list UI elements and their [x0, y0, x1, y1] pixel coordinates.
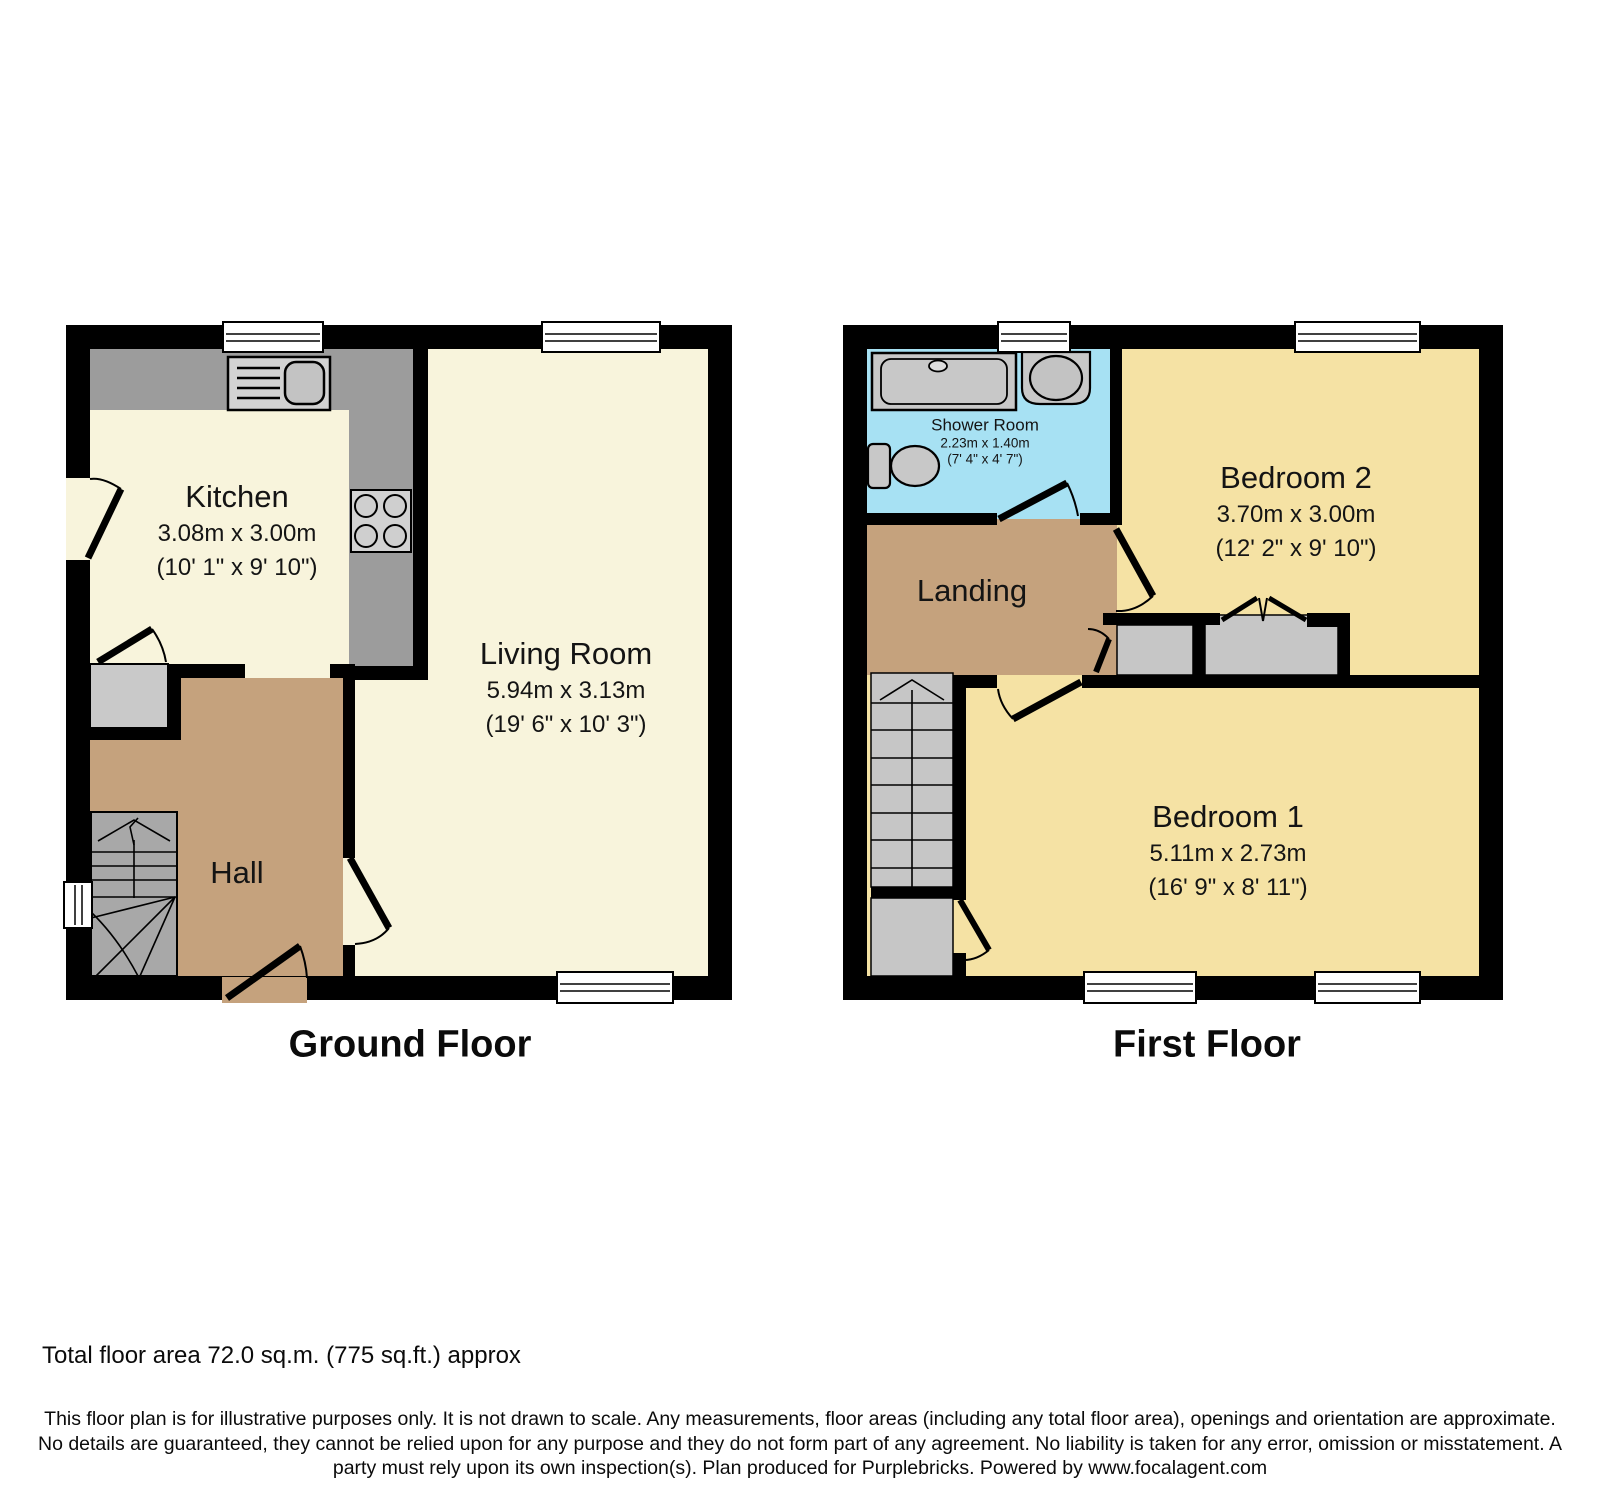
window-icon — [64, 882, 92, 928]
under-stairs-cupboard — [90, 664, 168, 728]
room-size-imperial: (7' 4" x 4' 7") — [931, 452, 1039, 468]
room-size-imperial: (19' 6" x 10' 3") — [480, 708, 652, 742]
room-name: Kitchen — [157, 477, 318, 517]
hall-label: Hall — [210, 853, 263, 893]
room-name: Landing — [917, 571, 1027, 611]
under-stairs-cupboard — [871, 898, 953, 976]
window-icon — [223, 322, 323, 352]
living-room-label: Living Room 5.94m x 3.13m (19' 6" x 10' … — [480, 634, 652, 742]
staircase-up-icon — [91, 812, 177, 976]
room-size-imperial: (12' 2" x 9' 10") — [1216, 532, 1377, 566]
window-icon — [1295, 322, 1420, 352]
window-icon — [1084, 972, 1196, 1003]
window-icon — [557, 972, 673, 1003]
ground-floor-title: Ground Floor — [289, 1024, 532, 1067]
room-name: Living Room — [480, 634, 652, 674]
toilet-icon — [868, 444, 939, 488]
hob-icon — [351, 490, 411, 552]
landing-label: Landing — [917, 571, 1027, 611]
total-floor-area: Total floor area 72.0 sq.m. (775 sq.ft.)… — [42, 1342, 521, 1370]
room-name: Shower Room — [931, 415, 1039, 436]
basin-icon — [1022, 352, 1090, 404]
room-size-metric: 3.08m x 3.00m — [157, 517, 318, 551]
shower-tray-icon — [872, 353, 1016, 410]
room-size-metric: 3.70m x 3.00m — [1216, 498, 1377, 532]
room-size-metric: 5.11m x 2.73m — [1148, 837, 1307, 871]
floorplan-canvas — [0, 0, 1600, 1501]
room-name: Bedroom 1 — [1148, 797, 1307, 837]
room-size-metric: 2.23m x 1.40m — [931, 436, 1039, 452]
room-size-metric: 5.94m x 3.13m — [480, 674, 652, 708]
kitchen-label: Kitchen 3.08m x 3.00m (10' 1" x 9' 10") — [157, 477, 318, 585]
disclaimer-text: This floor plan is for illustrative purp… — [35, 1407, 1565, 1481]
bedroom1-label: Bedroom 1 5.11m x 2.73m (16' 9" x 8' 11"… — [1148, 797, 1307, 905]
shower-room-label: Shower Room 2.23m x 1.40m (7' 4" x 4' 7"… — [931, 415, 1039, 468]
room-size-imperial: (16' 9" x 8' 11") — [1148, 871, 1307, 905]
window-icon — [542, 322, 660, 352]
room-size-imperial: (10' 1" x 9' 10") — [157, 551, 318, 585]
window-icon — [998, 322, 1070, 352]
staircase-down-icon — [871, 673, 953, 887]
closet — [1117, 625, 1193, 675]
first-floor-title: First Floor — [1113, 1024, 1301, 1067]
room-name: Bedroom 2 — [1216, 458, 1377, 498]
room-name: Hall — [210, 853, 263, 893]
bedroom2-label: Bedroom 2 3.70m x 3.00m (12' 2" x 9' 10"… — [1216, 458, 1377, 566]
kitchen-sink-icon — [228, 357, 330, 410]
window-icon — [1315, 972, 1420, 1003]
floorplan-page: Kitchen 3.08m x 3.00m (10' 1" x 9' 10") … — [0, 0, 1600, 1501]
